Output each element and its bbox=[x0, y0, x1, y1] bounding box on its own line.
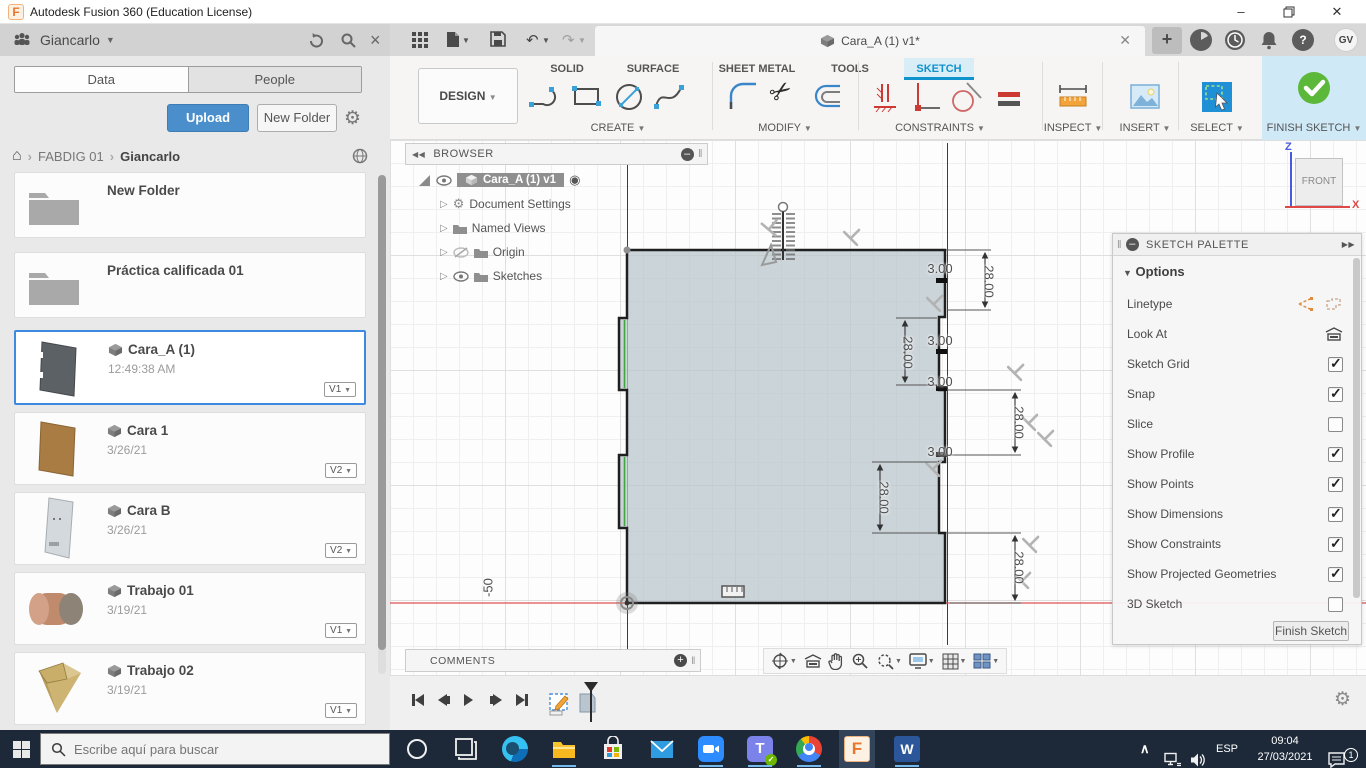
start-button-icon[interactable] bbox=[13, 741, 30, 758]
dimension-label[interactable]: 28.00 bbox=[982, 260, 997, 304]
minimize-button[interactable]: – bbox=[1224, 0, 1258, 24]
item-name: Trabajo 01 bbox=[127, 583, 194, 598]
model-thumbnail bbox=[29, 496, 89, 562]
panel-grip-icon[interactable]: ‖ bbox=[698, 148, 703, 160]
expand-arrow-icon[interactable]: ▷ bbox=[440, 223, 448, 234]
data-panel: Giancarlo ▼ × Data People Upload New Fol… bbox=[0, 24, 390, 730]
show-profile-checkbox[interactable] bbox=[1328, 447, 1343, 462]
close-button[interactable]: ✕ bbox=[1320, 0, 1354, 24]
tangent-constraint-icon[interactable] bbox=[950, 80, 984, 114]
save-icon[interactable] bbox=[490, 31, 506, 47]
cortana-icon[interactable] bbox=[404, 736, 430, 762]
select-group-label[interactable]: SELECT ▼ bbox=[1162, 122, 1272, 134]
x-axis-label: X bbox=[1352, 199, 1359, 211]
timeline-play-button[interactable] bbox=[464, 694, 481, 711]
palette-row-3d-sketch: 3D Sketch bbox=[1127, 594, 1343, 614]
horizontal-vertical-constraint-icon[interactable] bbox=[868, 80, 902, 114]
version-chip[interactable]: V2 ▼ bbox=[325, 543, 357, 558]
expand-arrow-icon[interactable]: ▷ bbox=[440, 247, 448, 258]
notification-badge[interactable]: 1 bbox=[1344, 748, 1358, 762]
model-thumbnail bbox=[25, 579, 91, 639]
circle-tool-icon[interactable] bbox=[612, 80, 646, 114]
team-icon bbox=[12, 32, 32, 48]
ribbon-tab-tools[interactable]: TOOLS bbox=[820, 58, 880, 80]
task-view-icon[interactable] bbox=[453, 736, 479, 762]
snap-checkbox[interactable] bbox=[1328, 387, 1343, 402]
ribbon-tab-sheet-metal[interactable]: SHEET METAL bbox=[710, 58, 804, 80]
rectangle-tool-icon[interactable] bbox=[570, 80, 604, 114]
projected-linetype-icon[interactable] bbox=[1325, 297, 1343, 311]
collapse-panel-icon[interactable]: ◀◀ bbox=[412, 150, 425, 159]
taskbar-search[interactable] bbox=[40, 733, 390, 765]
finish-sketch-button[interactable]: FINISH SKETCH ▼ bbox=[1262, 56, 1366, 140]
timeline-feature-icon[interactable] bbox=[576, 690, 598, 716]
orbit-icon[interactable]: ▼ bbox=[771, 652, 797, 670]
folder-icon bbox=[453, 223, 467, 234]
view-cube-front-face[interactable]: FRONT bbox=[1295, 158, 1343, 206]
title-bar: F Autodesk Fusion 360 (Education License… bbox=[0, 0, 1366, 24]
version-chip[interactable]: V1 ▼ bbox=[325, 703, 357, 718]
folder-icon bbox=[474, 247, 488, 258]
item-meta: 12:49:38 AM bbox=[108, 362, 175, 376]
visibility-toggle-icon[interactable]: – bbox=[1126, 238, 1139, 251]
help-icon[interactable]: ? bbox=[1292, 29, 1314, 51]
new-document-tab-button[interactable]: + bbox=[1152, 27, 1182, 54]
list-item-folder[interactable]: Práctica calificada 01 bbox=[14, 252, 366, 318]
grid-axis-label: -50 bbox=[481, 572, 496, 604]
equal-constraint-icon[interactable] bbox=[992, 84, 1026, 118]
document-tab-title: Cara_A (1) v1* bbox=[841, 34, 920, 48]
component-cube-icon bbox=[107, 504, 122, 518]
options-section-header[interactable]: ▼ Options bbox=[1123, 264, 1185, 279]
expanded-triangle-icon[interactable] bbox=[418, 174, 431, 187]
list-item-file[interactable]: Trabajo 01 3/19/21 V1 ▼ bbox=[14, 572, 366, 645]
fusion-app-icon[interactable]: F bbox=[844, 736, 870, 762]
activate-radio-icon[interactable]: ◉ bbox=[569, 172, 580, 188]
palette-scrollbar[interactable] bbox=[1353, 258, 1360, 598]
model-thumbnail bbox=[30, 338, 90, 400]
viewports-icon[interactable]: ▼ bbox=[973, 653, 999, 669]
window-title: Autodesk Fusion 360 (Education License) bbox=[30, 5, 252, 19]
display-settings-icon[interactable]: ▼ bbox=[909, 653, 935, 669]
ribbon-tab-surface[interactable]: SURFACE bbox=[615, 58, 691, 80]
dimension-label[interactable]: 3.00 bbox=[922, 374, 958, 389]
sketch-palette: ‖ – SKETCH PALETTE ▶▶ ▼ Options Linetype… bbox=[1112, 233, 1362, 645]
taskbar-clock[interactable]: 09:04 27/03/2021 bbox=[1252, 733, 1318, 765]
folder-icon bbox=[27, 263, 83, 307]
undo-dropdown-icon[interactable]: ▼ bbox=[542, 36, 550, 45]
new-folder-button[interactable]: New Folder bbox=[257, 104, 337, 132]
sketch-grid-checkbox[interactable] bbox=[1328, 357, 1343, 372]
component-cube-icon bbox=[107, 584, 122, 598]
sketch-line-tool-icon[interactable] bbox=[528, 80, 562, 114]
search-input[interactable] bbox=[74, 742, 354, 757]
add-comment-icon[interactable]: + bbox=[674, 654, 687, 667]
dimension-label[interactable]: 3.00 bbox=[922, 261, 958, 276]
close-panel-icon[interactable]: × bbox=[370, 30, 381, 51]
show-constraints-checkbox[interactable] bbox=[1328, 537, 1343, 552]
version-chip[interactable]: V2 ▼ bbox=[325, 463, 357, 478]
version-chip[interactable]: V1 ▼ bbox=[324, 382, 356, 397]
show-points-checkbox[interactable] bbox=[1328, 477, 1343, 492]
list-item-file[interactable]: Trabajo 02 3/19/21 V1 ▼ bbox=[14, 652, 366, 725]
timeline-settings-gear-icon[interactable]: ⚙ bbox=[1334, 688, 1351, 711]
action-center-icon[interactable] bbox=[1328, 741, 1345, 768]
model-thumbnail bbox=[29, 418, 89, 480]
file-explorer-icon[interactable] bbox=[551, 736, 577, 762]
account-avatar[interactable]: GV bbox=[1334, 28, 1358, 52]
mail-icon[interactable] bbox=[649, 736, 675, 762]
palette-row-show-profile: Show Profile bbox=[1127, 444, 1343, 464]
tab-people[interactable]: People bbox=[188, 67, 362, 92]
fusion-app-icon: F bbox=[8, 4, 24, 20]
sketch-palette-header[interactable]: ‖ – SKETCH PALETTE ▶▶ bbox=[1113, 234, 1361, 256]
data-people-tabs: Data People bbox=[14, 66, 362, 93]
breadcrumb: ⌂ › FABDIG 01 › Giancarlo bbox=[12, 146, 378, 166]
construction-linetype-icon[interactable] bbox=[1297, 296, 1315, 312]
timeline-bar: ⚙ bbox=[390, 675, 1366, 730]
list-item-file-selected[interactable]: Cara_A (1) 12:49:38 AM V1 ▼ bbox=[14, 330, 366, 405]
ribbon-tab-sketch[interactable]: SKETCH bbox=[904, 58, 974, 80]
document-cube-icon bbox=[820, 34, 835, 48]
measure-tool-icon[interactable] bbox=[1056, 80, 1090, 114]
eye-slash-icon[interactable] bbox=[453, 247, 469, 258]
browser-node-row[interactable]: ▷ Origin bbox=[440, 243, 525, 261]
fusion-taskbar-slot[interactable]: F bbox=[839, 730, 875, 768]
fillet-tool-icon[interactable] bbox=[726, 80, 760, 114]
dimension-label[interactable]: 3.00 bbox=[922, 444, 958, 459]
item-meta: 3/26/21 bbox=[107, 523, 147, 537]
model-thumbnail bbox=[29, 657, 89, 719]
language-indicator[interactable]: ESP bbox=[1216, 730, 1238, 768]
list-item-file[interactable]: Cara 1 3/26/21 V2 ▼ bbox=[14, 412, 366, 485]
finish-sketch-small-button[interactable]: Finish Sketch bbox=[1273, 621, 1349, 641]
palette-row-snap: Snap bbox=[1127, 384, 1343, 404]
redo-dropdown-icon[interactable]: ▼ bbox=[578, 36, 586, 45]
palette-row-show-dimensions: Show Dimensions bbox=[1127, 504, 1343, 524]
word-icon[interactable]: W bbox=[894, 736, 920, 762]
timeline-sketch-feature-icon[interactable] bbox=[548, 690, 572, 716]
timeline-go-to-end-button[interactable] bbox=[516, 694, 533, 711]
modify-group-label[interactable]: MODIFY ▼ bbox=[730, 122, 840, 134]
redo-icon[interactable]: ↷ bbox=[562, 31, 575, 49]
zoom-app-icon[interactable] bbox=[698, 736, 724, 762]
expand-arrow-icon[interactable]: ▷ bbox=[440, 271, 448, 282]
item-meta: 3/26/21 bbox=[107, 443, 147, 457]
browser-node-row[interactable]: ▷ Named Views bbox=[440, 219, 546, 237]
tab-data[interactable]: Data bbox=[15, 67, 188, 92]
browser-title: BROWSER bbox=[433, 148, 493, 160]
browser-header[interactable]: ◀◀ BROWSER – ‖ bbox=[405, 143, 708, 165]
restore-button[interactable] bbox=[1272, 0, 1306, 24]
globe-icon[interactable] bbox=[352, 148, 369, 165]
dimension-label[interactable]: 28.00 bbox=[901, 331, 916, 375]
browser-node-row[interactable]: ▷ ⚙ Document Settings bbox=[440, 195, 571, 213]
comments-bar[interactable]: COMMENTS + ‖ bbox=[405, 649, 701, 672]
palette-row-show-projected-geometries: Show Projected Geometries bbox=[1127, 564, 1343, 584]
chrome-icon[interactable] bbox=[796, 736, 822, 762]
palette-row-look-at: Look At bbox=[1127, 324, 1343, 344]
palette-row-show-points: Show Points bbox=[1127, 474, 1343, 494]
workspace-switcher[interactable]: DESIGN ▼ bbox=[418, 68, 518, 124]
offset-tool-icon[interactable] bbox=[810, 80, 844, 114]
breadcrumb-current: Giancarlo bbox=[120, 149, 180, 164]
visibility-toggle-icon[interactable]: – bbox=[681, 148, 694, 161]
breadcrumb-root[interactable]: FABDIG 01 bbox=[38, 149, 104, 164]
panel-grip-icon[interactable]: ‖ bbox=[691, 655, 696, 667]
node-label[interactable]: Origin bbox=[493, 245, 525, 259]
data-panel-header: Giancarlo ▼ × bbox=[0, 24, 390, 56]
app-grid-icon[interactable] bbox=[412, 32, 428, 48]
look-at-icon[interactable] bbox=[1325, 327, 1343, 342]
folder-icon bbox=[474, 271, 488, 282]
item-name: New Folder bbox=[107, 183, 180, 198]
comments-label: COMMENTS bbox=[430, 655, 495, 667]
document-tab[interactable]: Cara_A (1) v1* ✕ bbox=[595, 26, 1145, 56]
component-cube-icon bbox=[465, 174, 478, 186]
look-at-icon[interactable] bbox=[804, 654, 822, 669]
recent-clock-icon[interactable] bbox=[1224, 29, 1246, 51]
timeline-step-forward-button[interactable] bbox=[490, 694, 507, 711]
zoom-window-icon[interactable]: ▼ bbox=[876, 652, 902, 670]
constraints-group-label[interactable]: CONSTRAINTS ▼ bbox=[885, 122, 995, 134]
item-meta: 3/19/21 bbox=[107, 683, 147, 697]
item-name: Práctica calificada 01 bbox=[107, 263, 244, 278]
zoom-icon[interactable] bbox=[851, 652, 869, 670]
gear-icon[interactable]: ⚙ bbox=[344, 107, 361, 130]
insert-image-icon[interactable] bbox=[1128, 80, 1162, 114]
component-cube-icon bbox=[108, 343, 123, 357]
chevron-down-icon[interactable]: ▼ bbox=[106, 35, 115, 45]
dimension-label[interactable]: 28.00 bbox=[1012, 401, 1027, 445]
eye-icon[interactable] bbox=[453, 271, 469, 282]
finish-check-icon bbox=[1296, 70, 1332, 106]
list-item-file[interactable]: Cara B 3/26/21 V2 ▼ bbox=[14, 492, 366, 565]
job-status-icon[interactable] bbox=[1190, 29, 1212, 51]
slice-checkbox[interactable] bbox=[1328, 417, 1343, 432]
timeline-step-back-button[interactable] bbox=[438, 694, 455, 711]
show-projected-geometries-checkbox[interactable] bbox=[1328, 567, 1343, 582]
settings-gear-icon: ⚙ bbox=[453, 196, 465, 212]
ribbon-tab-solid[interactable]: SOLID bbox=[535, 58, 599, 80]
quick-access-toolbar: ▼ ↶ ▼ ↷ ▼ Cara_A (1) v1* ✕ + ? GV bbox=[390, 24, 1366, 56]
item-meta: 3/19/21 bbox=[107, 603, 147, 617]
show-dimensions-checkbox[interactable] bbox=[1328, 507, 1343, 522]
refresh-icon[interactable] bbox=[308, 32, 325, 49]
browser-root-row[interactable]: Cara_A (1) v1 ◉ bbox=[418, 171, 580, 189]
network-icon[interactable] bbox=[1164, 741, 1181, 768]
navigation-bar: ▼ ▼ ▼ ▼ ▼ bbox=[763, 648, 1007, 674]
create-group-label[interactable]: CREATE ▼ bbox=[563, 122, 673, 134]
z-axis-line bbox=[1290, 152, 1292, 207]
item-name: Cara_A (1) bbox=[128, 342, 195, 357]
item-name: Cara 1 bbox=[127, 423, 168, 438]
edge-browser-icon[interactable] bbox=[502, 736, 528, 762]
dimension-label[interactable]: 28.00 bbox=[877, 476, 892, 520]
component-cube-icon bbox=[107, 424, 122, 438]
item-name: Trabajo 02 bbox=[127, 663, 194, 678]
document-close-icon[interactable]: ✕ bbox=[1119, 32, 1131, 49]
eye-icon[interactable] bbox=[436, 175, 452, 186]
tray-chevron-icon[interactable]: ∧ bbox=[1140, 730, 1150, 768]
list-item-folder[interactable]: New Folder bbox=[14, 172, 366, 238]
3d-sketch-checkbox[interactable] bbox=[1328, 597, 1343, 612]
scrollbar-thumb[interactable] bbox=[378, 175, 386, 650]
palette-row-slice: Slice bbox=[1127, 414, 1343, 434]
select-tool-icon[interactable] bbox=[1200, 80, 1234, 114]
node-label[interactable]: Named Views bbox=[472, 221, 546, 235]
pan-hand-icon[interactable] bbox=[828, 653, 844, 670]
component-cube-icon bbox=[107, 664, 122, 678]
folder-icon bbox=[27, 183, 83, 227]
file-dropdown-icon[interactable]: ▼ bbox=[462, 36, 470, 45]
ribbon-toolbar: DESIGN ▼ SOLID SURFACE SHEET METAL TOOLS… bbox=[390, 56, 1366, 140]
upload-button[interactable]: Upload bbox=[167, 104, 249, 132]
browser-root-item[interactable]: Cara_A (1) v1 bbox=[457, 173, 564, 187]
clock-date: 27/03/2021 bbox=[1252, 749, 1318, 765]
palette-row-linetype: Linetype bbox=[1127, 294, 1343, 314]
timeline-go-to-start-button[interactable] bbox=[412, 694, 429, 711]
browser-node-row[interactable]: ▷ Sketches bbox=[440, 267, 542, 285]
search-icon[interactable] bbox=[340, 32, 357, 49]
palette-row-show-constraints: Show Constraints bbox=[1127, 534, 1343, 554]
team-name[interactable]: Giancarlo bbox=[40, 32, 100, 48]
x-axis-line bbox=[1285, 206, 1350, 208]
dimension-label[interactable]: 28.00 bbox=[1012, 546, 1027, 590]
expand-arrow-icon[interactable]: ▷ bbox=[440, 199, 448, 210]
taskbar: T ✓ F W ∧ ESP 09:04 27/03/2021 bbox=[0, 730, 1366, 768]
node-label[interactable]: Sketches bbox=[493, 269, 542, 283]
z-axis-label: Z bbox=[1285, 141, 1292, 153]
expand-panel-icon[interactable]: ▶▶ bbox=[1342, 240, 1355, 249]
sketch-palette-title: SKETCH PALETTE bbox=[1146, 239, 1249, 251]
palette-row-sketch-grid: Sketch Grid bbox=[1127, 354, 1343, 374]
file-icon[interactable] bbox=[446, 31, 460, 48]
clock-time: 09:04 bbox=[1252, 733, 1318, 749]
search-icon bbox=[51, 742, 66, 757]
grid-display-icon[interactable]: ▼ bbox=[942, 653, 967, 670]
panel-grip-icon[interactable]: ‖ bbox=[1117, 239, 1122, 251]
spline-tool-icon[interactable] bbox=[652, 80, 686, 114]
item-name: Cara B bbox=[127, 503, 171, 518]
volume-icon[interactable] bbox=[1190, 741, 1207, 768]
teams-icon[interactable]: T ✓ bbox=[747, 736, 773, 762]
node-label[interactable]: Document Settings bbox=[469, 197, 570, 211]
microsoft-store-icon[interactable] bbox=[600, 736, 626, 762]
timeline-marker-handle[interactable] bbox=[584, 682, 598, 692]
coincident-constraint-icon[interactable] bbox=[910, 80, 944, 114]
dimension-label[interactable]: 3.00 bbox=[922, 333, 958, 348]
notifications-bell-icon[interactable] bbox=[1258, 29, 1280, 51]
home-icon[interactable]: ⌂ bbox=[12, 147, 22, 165]
version-chip[interactable]: V1 ▼ bbox=[325, 623, 357, 638]
undo-icon[interactable]: ↶ bbox=[526, 31, 539, 49]
